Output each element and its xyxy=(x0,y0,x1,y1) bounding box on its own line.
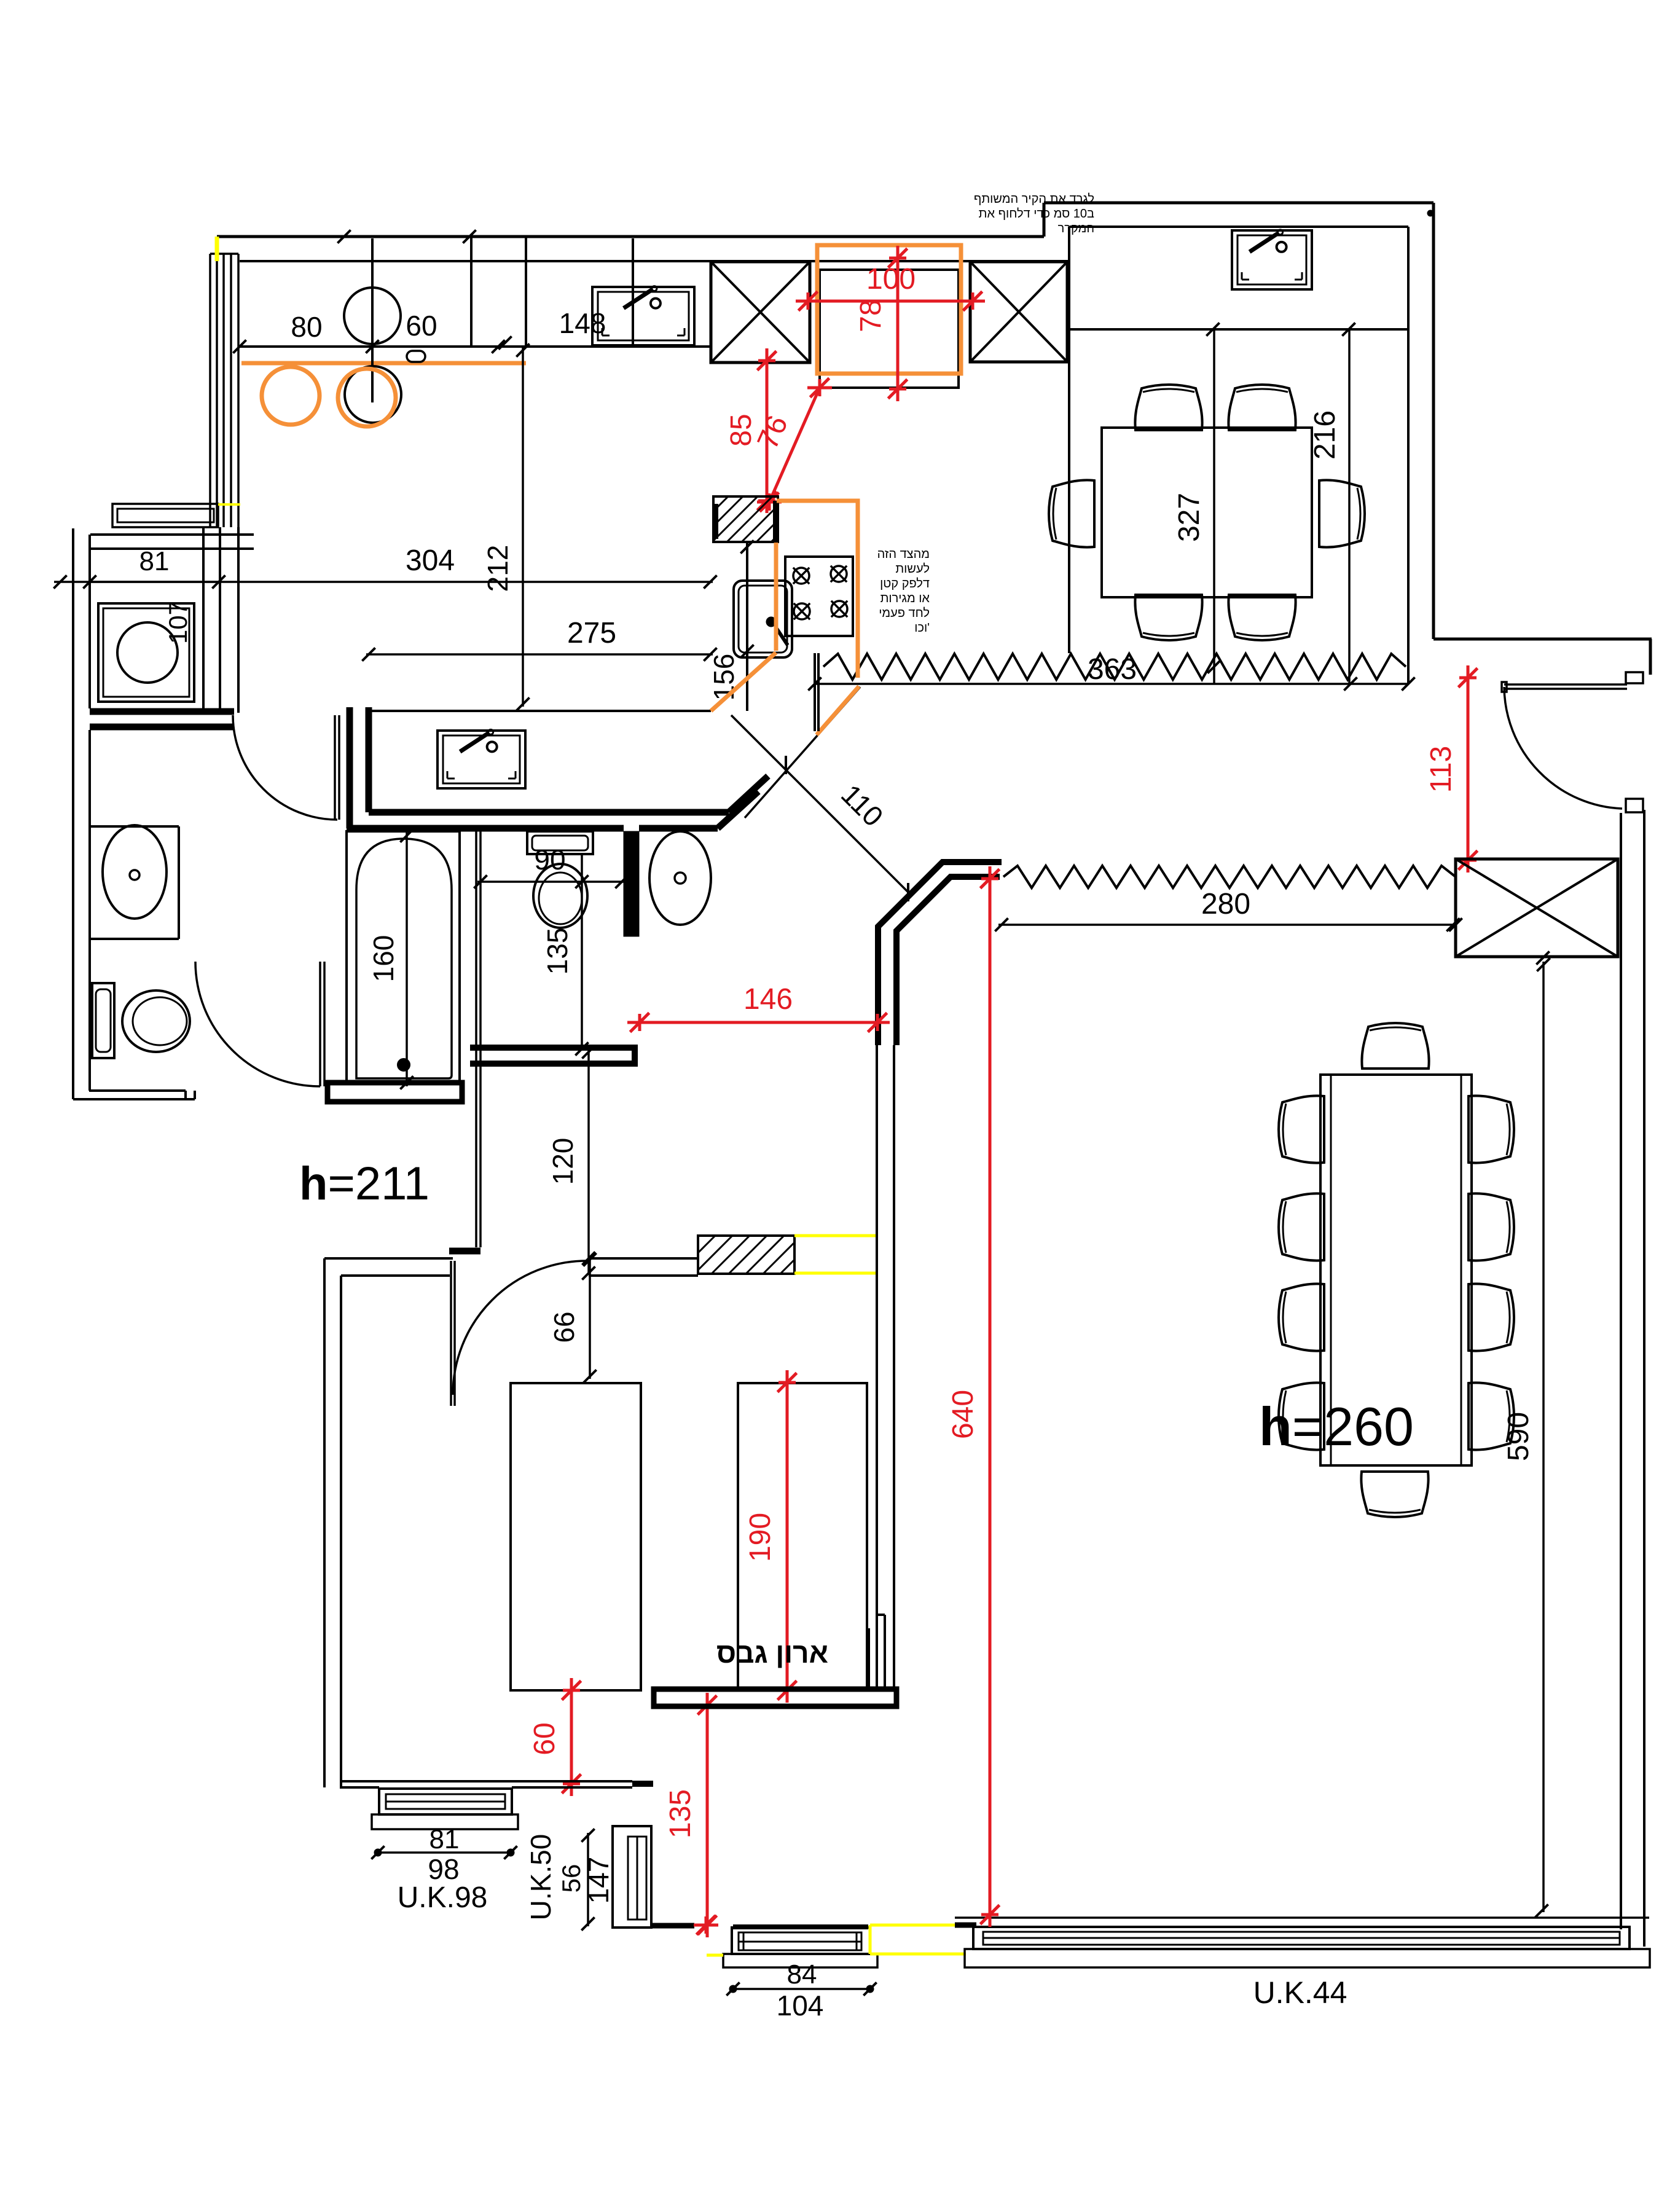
svg-text:363: 363 xyxy=(1088,653,1137,686)
svg-text:84: 84 xyxy=(787,1959,817,1990)
svg-text:100: 100 xyxy=(866,263,916,296)
svg-text:78: 78 xyxy=(855,299,887,332)
svg-text:60: 60 xyxy=(406,310,437,342)
svg-text:80: 80 xyxy=(291,311,322,343)
svg-text:135: 135 xyxy=(541,928,573,975)
svg-text:104: 104 xyxy=(777,1990,824,2022)
svg-text:ב10 סמ כדי דלחוף את: ב10 סמ כדי דלחוף את xyxy=(979,207,1094,221)
svg-text:60: 60 xyxy=(528,1722,561,1755)
svg-text:216: 216 xyxy=(1309,410,1341,460)
svg-text:56: 56 xyxy=(557,1864,586,1893)
svg-text:304: 304 xyxy=(406,544,455,577)
svg-text:או מגירות: או מגירות xyxy=(880,592,930,605)
svg-text:81: 81 xyxy=(139,546,170,576)
svg-text:U.K.98: U.K.98 xyxy=(398,1881,488,1914)
svg-text:107: 107 xyxy=(163,601,192,644)
svg-text:h=211: h=211 xyxy=(299,1158,429,1210)
svg-text:275: 275 xyxy=(567,617,616,649)
svg-text:90: 90 xyxy=(534,844,565,876)
svg-text:לגרד את הקיר המשותף: לגרד את הקיר המשותף xyxy=(974,192,1094,206)
svg-text:לחד פעמי: לחד פעמי xyxy=(879,606,930,620)
svg-text:147: 147 xyxy=(582,1857,614,1904)
svg-text:590: 590 xyxy=(1502,1412,1535,1461)
svg-text:המקרר: המקרר xyxy=(1058,222,1094,235)
svg-text:U.K.44: U.K.44 xyxy=(1253,1975,1347,2010)
svg-text:98: 98 xyxy=(428,1853,459,1885)
svg-text:U.K.50: U.K.50 xyxy=(525,1834,557,1921)
svg-text:146: 146 xyxy=(743,983,793,1016)
svg-text:120: 120 xyxy=(547,1138,579,1185)
svg-text:160: 160 xyxy=(367,935,399,982)
svg-text:66: 66 xyxy=(548,1311,580,1343)
svg-text:212: 212 xyxy=(482,545,514,592)
svg-text:ארון גבס: ארון גבס xyxy=(716,1637,828,1669)
svg-text:לעשות: לעשות xyxy=(895,562,930,576)
svg-text:מהצד הזה: מהצד הזה xyxy=(877,547,930,561)
svg-text:280: 280 xyxy=(1201,888,1250,920)
svg-text:דלפק קטן: דלפק קטן xyxy=(880,577,930,590)
svg-text:וכו': וכו' xyxy=(914,621,930,635)
svg-text:113: 113 xyxy=(1425,746,1457,793)
svg-text:135: 135 xyxy=(664,1789,697,1838)
svg-text:327: 327 xyxy=(1173,493,1206,542)
svg-text:640: 640 xyxy=(947,1390,979,1439)
svg-text:148: 148 xyxy=(559,307,606,339)
svg-text:190: 190 xyxy=(744,1513,777,1562)
svg-text:81: 81 xyxy=(429,1824,460,1854)
svg-text:156: 156 xyxy=(708,654,740,701)
svg-text:h=260: h=260 xyxy=(1259,1396,1414,1457)
